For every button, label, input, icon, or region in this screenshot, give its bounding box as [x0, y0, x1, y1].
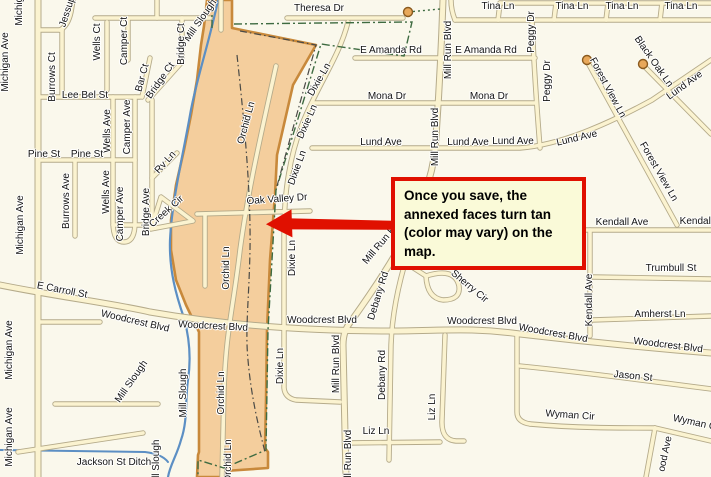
roads-fill-layer [0, 0, 711, 477]
annotation-callout: Once you save, the annexed faces turn ta… [391, 177, 586, 270]
basemap-svg [0, 0, 711, 477]
theresa-dr-culdesac [404, 8, 413, 17]
annotation-callout-text: Once you save, the annexed faces turn ta… [404, 188, 553, 259]
map-canvas[interactable]: Theresa DrTina LnTina LnTina LnTina LnMi… [0, 0, 711, 477]
black-oak-culdesac [639, 60, 648, 69]
forest-view-culdesac [583, 56, 592, 65]
